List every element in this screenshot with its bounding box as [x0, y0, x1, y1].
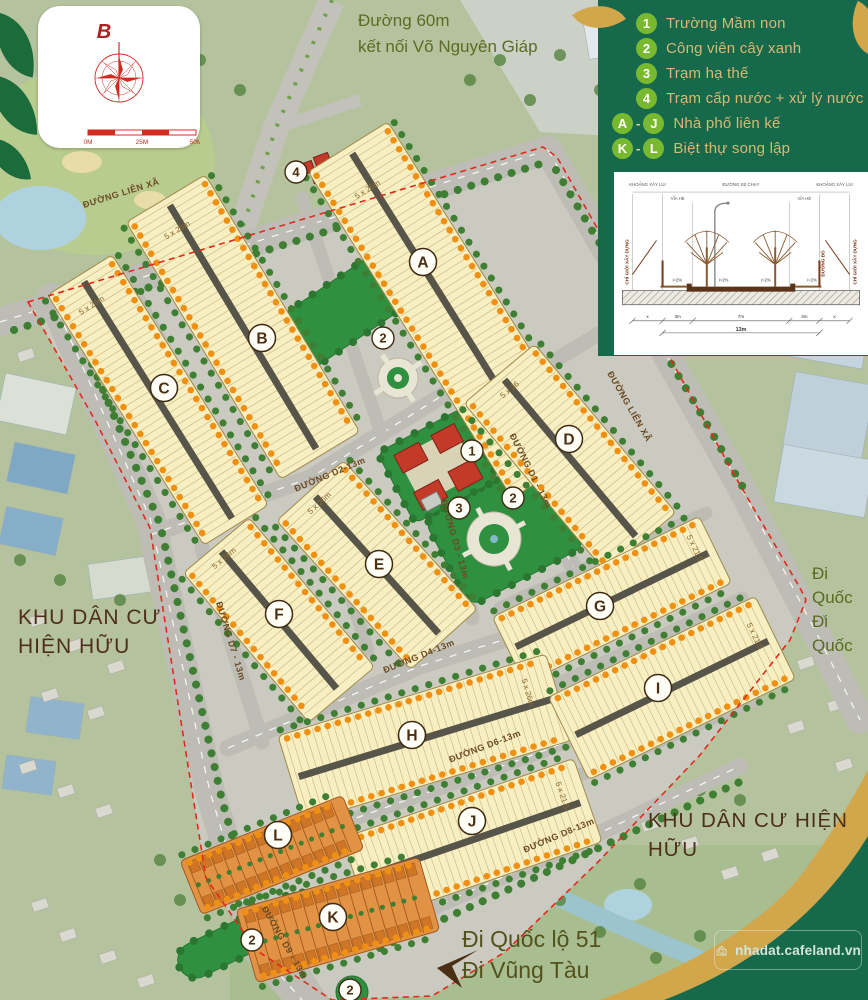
section-vertical-label: ĐƯỜNG ĐỎ: [818, 250, 825, 277]
legend-item: 1Trường Mầm non: [612, 11, 868, 36]
legend-badge: 4: [636, 88, 657, 109]
area-label-line: KHU DÂN CƯ HIỆN HỮU: [648, 806, 868, 864]
slope-label: i=2%: [807, 278, 817, 283]
block-letter: F: [274, 607, 283, 624]
block-letter: G: [594, 599, 606, 616]
poi-badge-3: 3: [448, 497, 470, 519]
poi-badge-4: 4: [285, 161, 307, 183]
legend-label: Công viên cây xanh: [666, 40, 801, 57]
block-badge-K: K: [320, 904, 347, 931]
block-letter: J: [468, 814, 477, 831]
scale-label: 0M: [83, 139, 92, 146]
legend-label: Trạm cấp nước + xử lý nước thải: [666, 90, 868, 107]
road-60m-note-line1: Đường 60m: [358, 8, 538, 34]
block-badge-J: J: [459, 808, 486, 835]
block-badge-D: D: [556, 426, 583, 453]
poi-number: 2: [248, 933, 255, 948]
legend-rows: 1Trường Mầm non2Công viên cây xanh3Trạm …: [598, 0, 868, 161]
direction-label-right: Đi Quốc Đi Quốc: [812, 562, 868, 658]
block-badge-G: G: [587, 593, 614, 620]
legend-label: Nhà phố liên kế: [673, 115, 780, 132]
scale-label: 25M: [136, 139, 149, 146]
block-badge-F: F: [266, 601, 293, 628]
poi-badge-2: 2: [372, 327, 394, 349]
block-letter: B: [256, 331, 267, 348]
poi-number: 2: [509, 491, 516, 506]
poi-number: 2: [346, 983, 353, 998]
area-label-line: HIỆN HỮU: [18, 632, 161, 661]
dim-total-label: 13m: [736, 327, 747, 333]
slope-label: i=2%: [761, 278, 771, 283]
legend-badge: A: [612, 113, 633, 134]
dim-label: 3m: [674, 314, 681, 319]
dim-label: x: [833, 314, 836, 319]
legend-badge: 3: [636, 63, 657, 84]
block-badge-B: B: [249, 325, 276, 352]
block-badge-I: I: [645, 675, 672, 702]
direction-label-bottom: Đi Quốc lộ 51 Đi Vũng Tàu: [462, 924, 601, 986]
watermark-badge: nhadat.cafeland.vn: [714, 930, 862, 970]
area-label-line: KHU DÂN CƯ: [18, 603, 161, 632]
section-label: VỈA HÈ: [671, 196, 685, 201]
section-label: ĐƯỜNG XE CHẠY: [722, 182, 759, 187]
section-label: KHOẢNG XÂY LÙI: [816, 182, 852, 187]
block-letter: I: [656, 681, 660, 698]
legend-badge: 1: [636, 13, 657, 34]
legend-badge: L: [643, 138, 664, 159]
legend-badge: K: [612, 138, 633, 159]
dim-label: 7m: [738, 314, 745, 319]
road-60m-note: Đường 60m kết nối Võ Nguyên Giáp: [358, 8, 538, 60]
block-letter: D: [563, 432, 574, 449]
house-search-icon: [715, 941, 728, 960]
legend-label: Trường Mầm non: [666, 15, 786, 32]
direction-line: Đi Quốc: [812, 562, 868, 610]
legend-label: Trạm hạ thế: [666, 65, 749, 82]
block-letter: K: [327, 910, 339, 927]
legend-badge: 2: [636, 38, 657, 59]
block-badge-H: H: [399, 722, 426, 749]
poi-number: 1: [468, 444, 475, 459]
block-letter: H: [406, 728, 417, 745]
block-letter: A: [417, 255, 428, 272]
poi-badge-2: 2: [502, 487, 524, 509]
legend-badge: J: [643, 113, 664, 134]
direction-line: Đi Quốc lộ 51: [462, 924, 601, 955]
legend-item: A-JNhà phố liên kế: [612, 111, 868, 136]
direction-line: Đi Quốc: [812, 610, 868, 658]
legend-item: 3Trạm hạ thế: [612, 61, 868, 86]
slope-label: i=2%: [719, 278, 729, 283]
section-label: VỈA HÈ: [797, 196, 811, 201]
section-vertical-label: CHỈ GIỚI XÂY DỰNG: [622, 239, 629, 285]
scale-bar: 0M 25M 50M: [83, 130, 200, 146]
poi-number: 3: [455, 501, 462, 516]
watermark-text: nhadat.cafeland.vn: [735, 943, 861, 958]
dim-label: 3m: [801, 314, 808, 319]
legend-dash: -: [636, 141, 640, 156]
dim-label: x: [646, 314, 649, 319]
tree-icon: [685, 230, 798, 286]
logo-card: B 0M 25M 50M: [38, 6, 200, 148]
compass-north-letter: B: [97, 21, 111, 43]
poi-number: 4: [292, 165, 300, 180]
direction-line: Đi Vũng Tàu: [462, 955, 601, 986]
poi-badge-2: 2: [339, 979, 361, 1000]
slope-label: i=2%: [673, 278, 683, 283]
legend-label: Biệt thự song lập: [673, 140, 790, 157]
block-badge-C: C: [151, 375, 178, 402]
block-badge-E: E: [366, 551, 393, 578]
master-plan-poster: 5 x 26m5 x 26m5 x 26m5 x 265 x 26m5 x 26…: [0, 0, 868, 1000]
road-60m-note-line2: kết nối Võ Nguyên Giáp: [358, 34, 538, 60]
section-label: KHOẢNG XÂY LÙI: [629, 182, 665, 187]
block-letter: L: [273, 828, 282, 845]
legend-dash: -: [636, 116, 640, 131]
legend-item: K-LBiệt thự song lập: [612, 136, 868, 161]
legend-item: 2Công viên cây xanh: [612, 36, 868, 61]
poi-badge-2: 2: [241, 929, 263, 951]
legend-item: 4Trạm cấp nước + xử lý nước thải: [612, 86, 868, 111]
block-badge-L: L: [265, 822, 292, 849]
area-label-left: KHU DÂN CƯ HIỆN HỮU: [18, 603, 161, 661]
compass-rose-icon: [95, 42, 143, 102]
area-label-right: KHU DÂN CƯ HIỆN HỮU: [648, 806, 868, 864]
road-cross-section-card: KHOẢNG XÂY LÙI ĐƯỜNG XE CHẠY KHOẢNG XÂY …: [614, 172, 868, 355]
block-letter: E: [374, 557, 384, 574]
poi-number: 2: [379, 331, 386, 346]
scale-label: 50M: [190, 139, 200, 146]
block-letter: C: [158, 381, 169, 398]
section-vertical-label: CHỈ GIỚI XÂY DỰNG: [851, 239, 858, 285]
compass-and-scale: B 0M 25M 50M: [38, 6, 200, 148]
poi-badge-1: 1: [461, 440, 483, 462]
road-cross-section: KHOẢNG XÂY LÙI ĐƯỜNG XE CHẠY KHOẢNG XÂY …: [614, 172, 868, 355]
block-badge-A: A: [410, 249, 437, 276]
